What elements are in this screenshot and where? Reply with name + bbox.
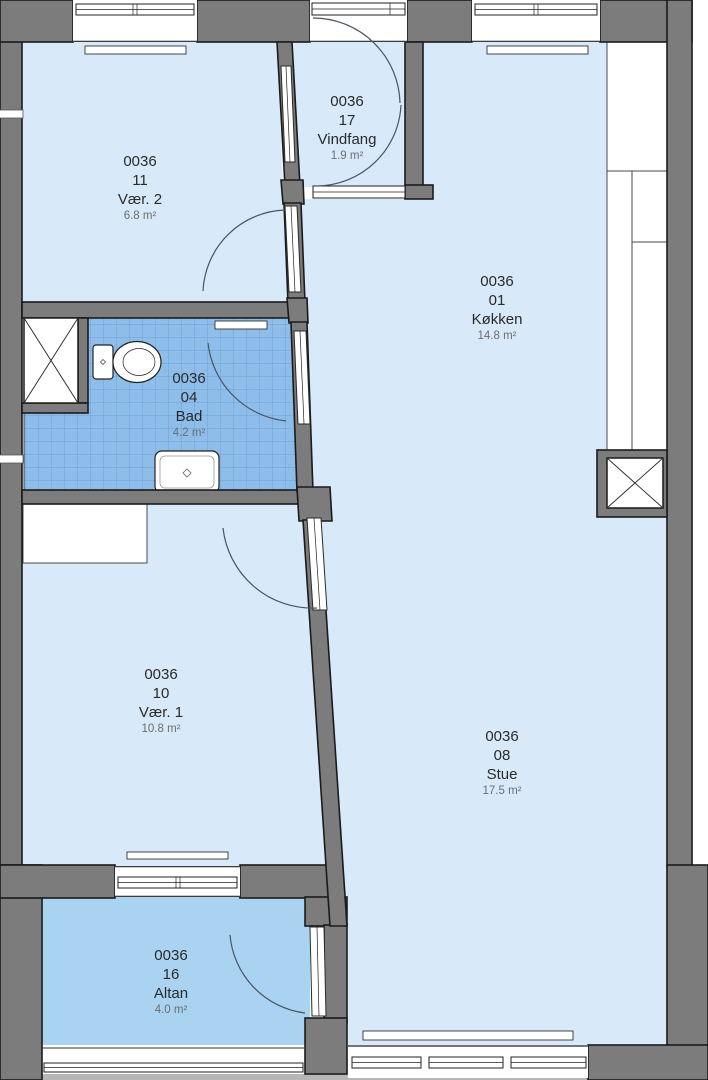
room-label-altan: 0036 16 Altan 4.0 m² (154, 946, 188, 1017)
room-label-koekken: 0036 01 Køkken 14.8 m² (472, 272, 523, 343)
wall-segment (0, 865, 115, 898)
room-name: Vær. 2 (118, 190, 162, 209)
wall-segment (22, 403, 88, 413)
wall-segment (667, 865, 708, 1047)
radiator (85, 46, 186, 54)
room-id: 10 (139, 684, 183, 703)
floor-plan: 0036 11 Vær. 2 6.8 m² 0036 17 Vindfang 1… (0, 0, 708, 1080)
radiator (363, 1031, 573, 1040)
room-label-stue: 0036 08 Stue 17.5 m² (483, 727, 522, 798)
wall-diagonal (287, 298, 308, 323)
entry-door (310, 0, 407, 42)
room-name: Vær. 1 (139, 703, 183, 722)
wall-segment (588, 1045, 708, 1080)
room-id: 01 (472, 291, 523, 310)
room-number: 0036 (483, 727, 522, 746)
wall-segment (324, 925, 347, 1023)
wall-segment (305, 1018, 347, 1074)
room-name: Køkken (472, 310, 523, 329)
radiator (487, 46, 588, 54)
wall-segment (22, 490, 310, 504)
room-area: 4.2 m² (172, 426, 205, 440)
room-name: Vindfang (318, 130, 377, 149)
kitchen-counter (607, 42, 667, 452)
window-vaer-1 (115, 866, 240, 897)
radiator (127, 852, 228, 859)
room-id: 16 (154, 965, 188, 984)
room-label-vindfang: 0036 17 Vindfang 1.9 m² (318, 92, 377, 163)
room-label-bad: 0036 04 Bad 4.2 m² (172, 369, 205, 440)
room-id: 04 (172, 388, 205, 407)
room-name: Stue (483, 765, 522, 784)
wall-segment (197, 0, 310, 42)
counter-segment (632, 242, 667, 452)
room-name: Altan (154, 984, 188, 1003)
wardrobe (23, 502, 147, 563)
room-area: 10.8 m² (139, 722, 183, 736)
sink-icon (155, 451, 219, 493)
room-number: 0036 (139, 665, 183, 684)
wall-joint (0, 455, 23, 463)
room-area: 6.8 m² (118, 209, 162, 223)
counter-segment (607, 171, 632, 452)
room-label-vaer-1: 0036 10 Vær. 1 10.8 m² (139, 665, 183, 736)
counter-segment (632, 171, 667, 242)
wall-segment (667, 0, 692, 867)
toilet-icon (93, 342, 161, 383)
room-number: 0036 (118, 152, 162, 171)
room-label-vaer-2: 0036 11 Vær. 2 6.8 m² (118, 152, 162, 223)
room-id: 17 (318, 111, 377, 130)
wall-segment (407, 0, 472, 42)
room-area: 17.5 m² (483, 784, 522, 798)
shaft-x-icon (607, 458, 663, 508)
wall-diagonal (281, 180, 304, 204)
towel-radiator (215, 321, 267, 329)
wall-segment (22, 302, 304, 318)
room-area: 14.8 m² (472, 329, 523, 343)
window-vaer-2 (73, 0, 197, 42)
room-area: 4.0 m² (154, 1003, 188, 1017)
wall-segment (405, 185, 433, 199)
shaft-x-icon (24, 318, 78, 403)
wall-diagonal (297, 487, 332, 521)
vindfang-partition (313, 186, 405, 198)
wall-segment (0, 0, 22, 867)
wall-segment (78, 318, 88, 403)
wall-segment (0, 0, 73, 42)
room-id: 08 (483, 746, 522, 765)
room-number: 0036 (172, 369, 205, 388)
balcony-railing (42, 1048, 305, 1072)
room-number: 0036 (472, 272, 523, 291)
wall-segment (240, 865, 335, 898)
window-koekken (472, 0, 600, 42)
room-id: 11 (118, 171, 162, 190)
window-stue (348, 1045, 588, 1078)
room-number: 0036 (154, 946, 188, 965)
counter-segment (607, 42, 667, 171)
room-area: 1.9 m² (318, 149, 377, 163)
room-name: Bad (172, 407, 205, 426)
wall-segment (405, 42, 423, 187)
room-number: 0036 (318, 92, 377, 111)
wall-joint (0, 110, 23, 118)
